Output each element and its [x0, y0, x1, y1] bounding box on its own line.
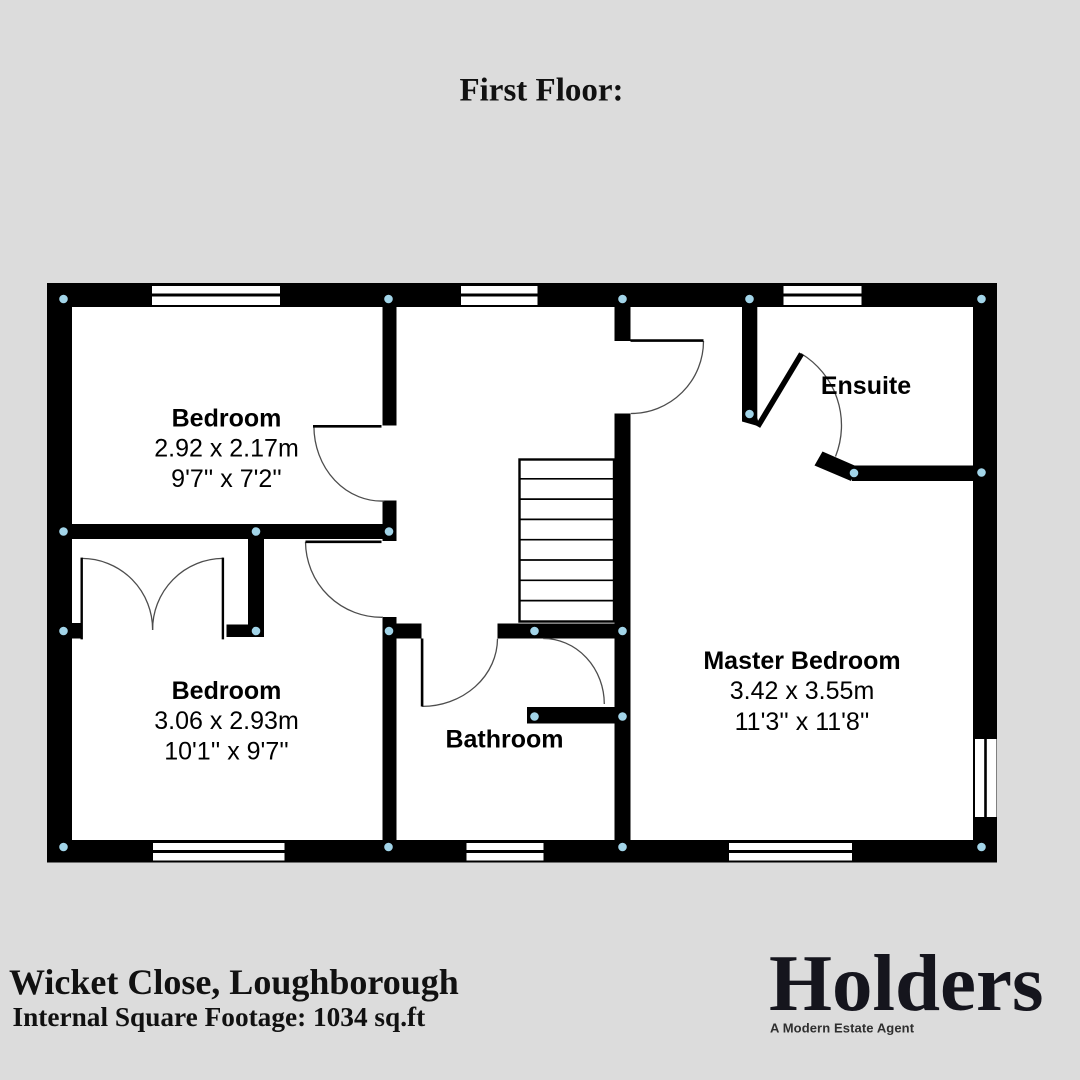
svg-text:Master Bedroom: Master Bedroom	[703, 647, 900, 675]
svg-text:Holders: Holders	[769, 938, 1043, 1028]
svg-text:Bedroom: Bedroom	[172, 677, 282, 705]
svg-text:Bedroom: Bedroom	[172, 404, 282, 432]
svg-text:9'7'' x 7'2'': 9'7'' x 7'2''	[171, 465, 282, 493]
svg-text:Bathroom: Bathroom	[445, 726, 563, 754]
svg-text:3.06 x 2.93m: 3.06 x 2.93m	[154, 707, 299, 735]
svg-text:Wicket Close, Loughborough: Wicket Close, Loughborough	[9, 962, 459, 1002]
svg-text:3.42 x 3.55m: 3.42 x 3.55m	[730, 677, 875, 705]
svg-text:A Modern Estate Agent: A Modern Estate Agent	[770, 1021, 915, 1036]
svg-text:10'1'' x 9'7'': 10'1'' x 9'7''	[164, 738, 289, 766]
svg-text:First Floor:: First Floor:	[459, 73, 623, 109]
svg-text:11'3'' x 11'8'': 11'3'' x 11'8''	[735, 708, 870, 736]
svg-text:Ensuite: Ensuite	[821, 372, 911, 400]
svg-text:2.92 x 2.17m: 2.92 x 2.17m	[154, 435, 299, 463]
svg-text:Internal Square Footage: 1034: Internal Square Footage: 1034 sq.ft	[13, 1002, 426, 1032]
